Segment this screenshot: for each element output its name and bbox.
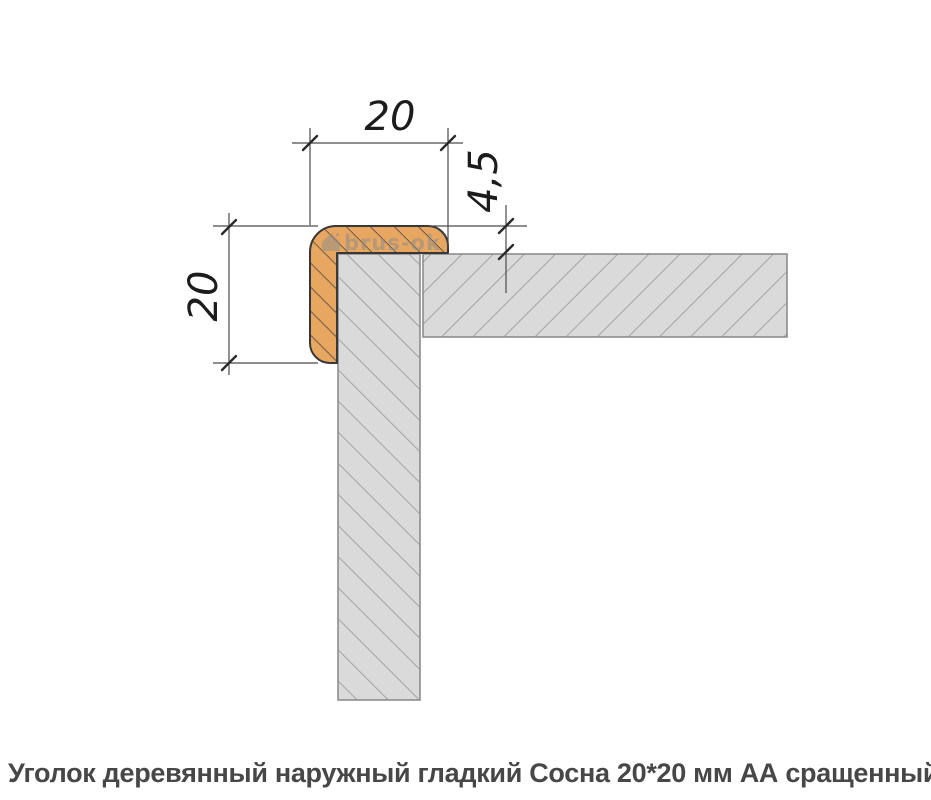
dimension-width-value: 20 [365,94,416,140]
watermark-text: brus-ok [344,231,441,255]
wall-vertical-hatch [338,254,420,700]
dimension-height: 20 [181,213,318,375]
dimension-lip-value: 4,5 [461,149,507,213]
technical-drawing: brus-ok 20 20 4,5 [0,0,931,745]
dimension-width: 20 [292,94,463,248]
page: brus-ok 20 20 4,5 Уголок дер [0,0,931,800]
wall-horizontal-hatch [423,254,787,337]
wall-corner [338,254,787,700]
dimension-height-value: 20 [181,271,227,322]
product-caption: Уголок деревянный наружный гладкий Сосна… [8,758,923,789]
